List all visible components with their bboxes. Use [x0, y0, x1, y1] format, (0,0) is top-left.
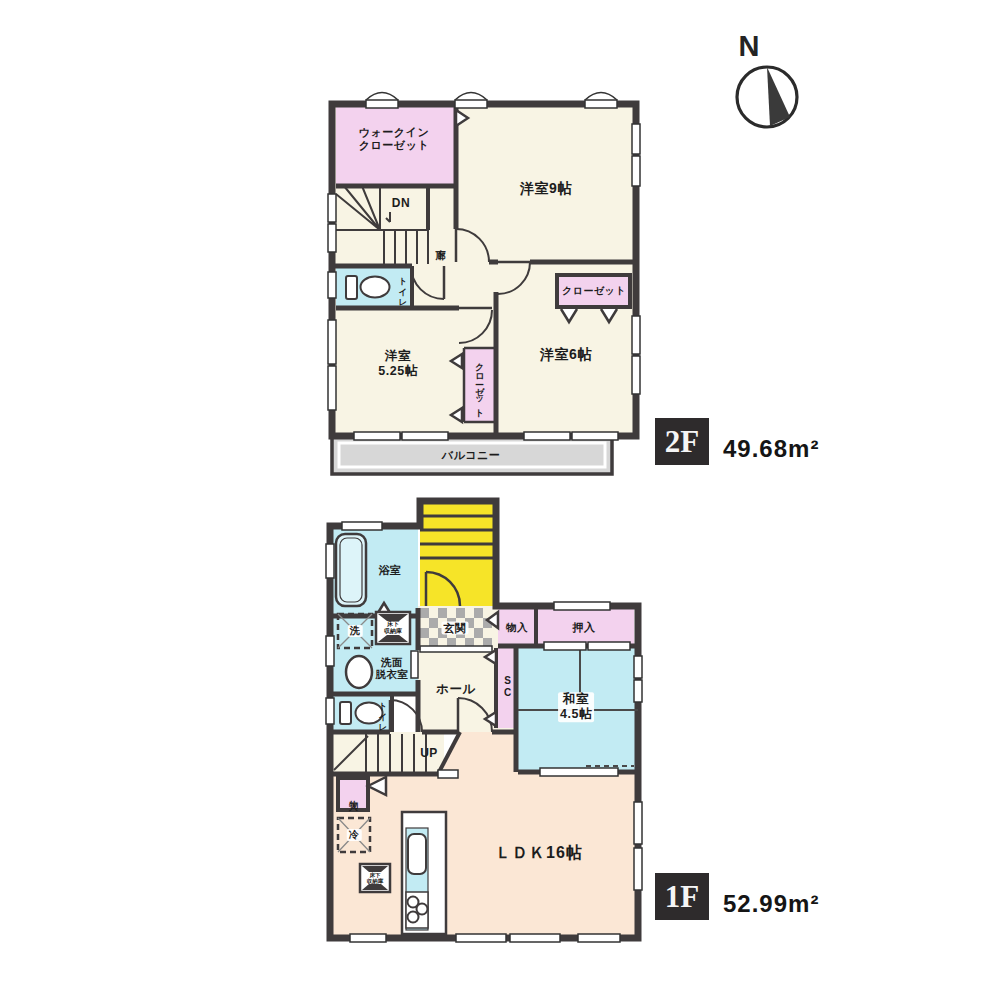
underfloor-label-2: 床下 収納庫	[367, 872, 384, 885]
stairs-up-label: UP	[420, 746, 438, 760]
bathtub-icon	[336, 534, 366, 606]
toilet-icon	[346, 276, 390, 299]
room-label-washitsu: 和室 4.5帖	[558, 692, 594, 722]
room-label-entrance: 玄関	[442, 622, 469, 635]
room-label-ldk: ＬＤＫ16帖	[495, 844, 583, 863]
floor1-badge-box: 1F	[655, 873, 709, 920]
washbasin-icon	[346, 656, 372, 688]
room-label-bedroom6: 洋室6帖	[540, 346, 592, 363]
room-label-balcony: バルコニー	[442, 449, 501, 462]
toilet-icon	[340, 702, 383, 724]
room-label-hallway: 廊下	[435, 242, 445, 244]
sink-icon	[408, 834, 426, 874]
room-label-storage-ldk: 物入	[349, 793, 358, 795]
floor2-badge: 2F 49.68m²	[655, 418, 819, 465]
room-label-bath: 浴室	[379, 564, 402, 577]
room-label-shoe-closet: SC	[502, 675, 512, 699]
underfloor2-line2: 収納庫	[367, 878, 384, 884]
room-label-washroom: 洗面 脱衣室	[376, 656, 409, 681]
floor2-area: 49.68m²	[723, 435, 819, 463]
kitchen-counter	[402, 812, 446, 934]
room-label-storage-entrance: 物入	[506, 621, 528, 633]
room-label-oshiire: 押入	[573, 621, 596, 634]
room-label-hall: ホール	[436, 682, 476, 697]
washroom-line1: 洗面	[376, 656, 409, 668]
stairs-dn-label: DN	[392, 196, 410, 210]
laundry-label: 洗	[348, 625, 363, 637]
room-label-closet-back: クローゼット	[562, 285, 626, 297]
floor2-badge-box: 2F	[655, 418, 709, 465]
fridge-label: 冷	[347, 829, 362, 841]
room-label-toilet-2f: トイレ	[399, 271, 408, 303]
wic-line1: ウォークイン	[359, 126, 429, 139]
washroom-line2: 脱衣室	[376, 668, 409, 680]
window-swing-arcs	[366, 93, 617, 101]
compass: N	[726, 34, 812, 134]
room-label-bedroom525: 洋室 5.25帖	[378, 349, 417, 379]
room-label-wic: ウォークイン クローゼット	[359, 126, 429, 152]
washitsu-line2: 4.5帖	[560, 707, 592, 722]
floor1-plan: 浴室 洗 床下 収納庫 洗面 脱衣室 玄関 物入 押入 ホール SC 和室 4.…	[326, 496, 646, 944]
bedroom525-line1: 洋室	[378, 349, 417, 364]
underfloor-label-1: 床下 収納庫	[384, 621, 402, 635]
wic-line2: クローゼット	[359, 139, 429, 152]
room-label-bedroom9: 洋室9帖	[520, 180, 572, 197]
compass-north-label: N	[732, 30, 766, 63]
room-label-toilet-1f: トイレ	[379, 696, 388, 728]
floor2-plan: ウォークイン クローゼット 洋室9帖 DN 廊下 トイレ 洋室 5.25帖 クロ…	[328, 96, 646, 478]
washitsu-line1: 和室	[560, 692, 592, 707]
floor1-area: 52.99m²	[723, 890, 819, 918]
bedroom525-line2: 5.25帖	[378, 364, 417, 379]
floor1-badge: 1F 52.99m²	[655, 873, 819, 920]
room-label-closet-side: クローゼット	[475, 356, 484, 413]
floorplan-page: N	[0, 0, 1000, 1000]
underfloor1-line2: 収納庫	[384, 628, 402, 635]
